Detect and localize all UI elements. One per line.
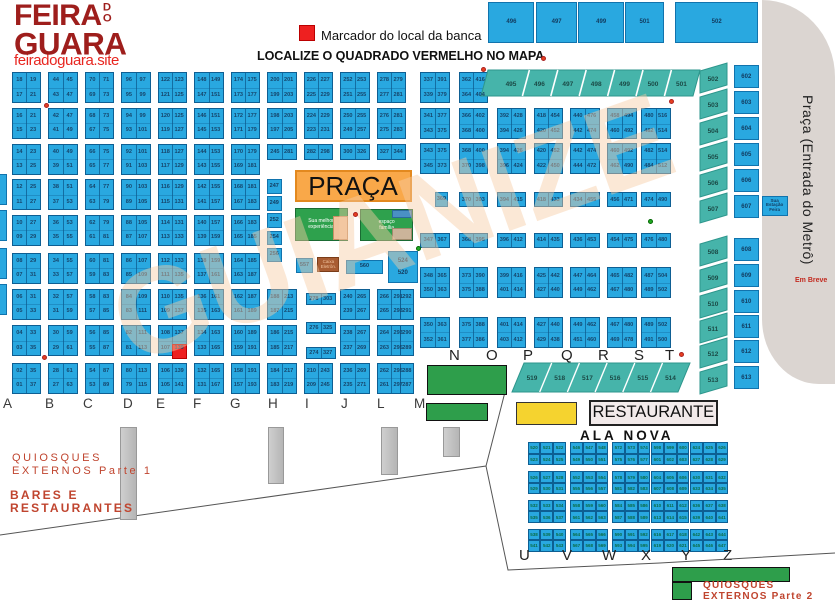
svg-text:495: 495 <box>506 81 517 88</box>
svg-text:503: 503 <box>708 102 719 109</box>
svg-text:496: 496 <box>534 81 545 88</box>
svg-text:509: 509 <box>708 275 719 282</box>
svg-text:504: 504 <box>708 128 719 135</box>
svg-text:506: 506 <box>708 180 719 187</box>
svg-text:510: 510 <box>708 301 719 308</box>
svg-text:511: 511 <box>708 326 719 333</box>
svg-text:512: 512 <box>708 351 719 358</box>
svg-text:498: 498 <box>591 81 602 88</box>
svg-text:502: 502 <box>708 76 719 83</box>
svg-text:501: 501 <box>676 81 687 88</box>
svg-text:507: 507 <box>708 206 719 213</box>
svg-text:508: 508 <box>708 249 719 256</box>
svg-text:499: 499 <box>619 81 630 88</box>
svg-text:500: 500 <box>648 81 659 88</box>
svg-text:497: 497 <box>562 81 573 88</box>
svg-text:505: 505 <box>708 154 719 161</box>
